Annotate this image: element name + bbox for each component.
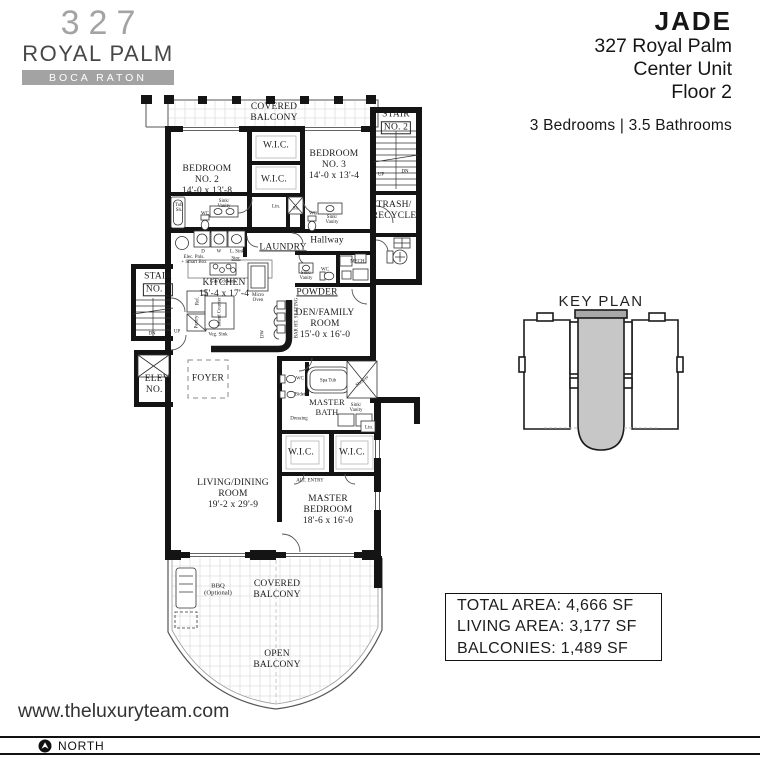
stair2-number: NO. 2 — [381, 122, 411, 135]
label-linen-top: Lin. — [272, 203, 280, 208]
fixture-label-sink-master: Sink/ Vanity — [350, 402, 363, 412]
fixture-label-refrigerator: Ref. — [194, 297, 199, 305]
room-label-master-bedroom: MASTER BEDROOM 18'-6 x 16'-0 — [303, 494, 353, 528]
room-label-mech: MECH. — [350, 258, 365, 263]
fixture-label-wc-powder: WC — [321, 266, 329, 271]
room-label-bedroom-2: BEDROOM NO. 2 14'-0 x 13'-8 — [182, 164, 232, 198]
room-label-trash-recycle: TRASH/ RECYCLE — [372, 200, 417, 222]
room-label-hallway: Hallway — [310, 235, 344, 246]
fixture-label-gas-cooktop: Gas Cooktop — [210, 278, 236, 283]
fixture-label-bidet: Bidet — [295, 391, 306, 396]
room-label-wic-2: W.I.C. — [261, 174, 287, 185]
fixture-label-wc-bed2: WC — [201, 210, 209, 215]
floorplan-sheet: COVERED BALCONY STAIRNO. 2 BEDROOM NO. 2… — [0, 0, 760, 760]
room-label-open-balcony: OPEN BALCONY — [253, 649, 300, 671]
label-stair2-dn: DN — [401, 168, 408, 173]
room-label-laundry: LAUNDRY — [259, 242, 306, 253]
room-label-wic-3: W.I.C. — [288, 447, 314, 458]
fixture-label-bar-seating: BAR HT. SEATING — [293, 298, 298, 339]
room-label-foyer: FOYER — [192, 373, 224, 384]
fixture-label-washer: W — [217, 248, 222, 253]
fixture-label-pantry: Pantry — [193, 316, 198, 329]
room-label-living-dining: LIVING/DINING ROOM 19'-2 x 29'-9 — [197, 478, 269, 512]
fixture-label-electrical: Elec. Pnls. + Smart Box — [181, 254, 206, 264]
fixture-label-wc-bed3: WC — [309, 210, 317, 215]
label-bbq: BBQ (Optional) — [204, 582, 232, 596]
stair2-word: STAIR — [382, 109, 410, 119]
label-stair2-up: UP — [378, 171, 384, 176]
plan-labels-layer: COVERED BALCONY STAIRNO. 2 BEDROOM NO. 2… — [0, 0, 760, 760]
stair3-number: NO. 3 — [143, 284, 173, 297]
room-label-master-bath: MASTER BATH — [309, 397, 345, 417]
fixture-label-spa-tub: Spa Tub — [320, 377, 336, 382]
fixture-label-island-counter: Island Counter — [216, 297, 221, 326]
fixture-label-storage: Stor. — [231, 255, 240, 260]
fixture-label-sink-powder: Sink/ Vanity — [300, 270, 313, 280]
room-label-elevator-2: ELEV. NO. 2 — [145, 374, 171, 396]
room-label-covered-balcony-top: COVERED BALCONY — [250, 102, 297, 124]
fixture-label-shower-master: Shower — [354, 374, 369, 387]
stair3-word: STAIR — [144, 271, 172, 281]
room-label-powder: POWDER — [296, 287, 337, 298]
fixture-label-sink-bed2: Sink/ Vanity — [218, 198, 231, 208]
fixture-label-wc-master: WC — [296, 375, 304, 380]
fixture-label-shower-bed3: Sh. — [293, 205, 299, 210]
fixture-label-tub-shower: Tub Sh. — [175, 202, 183, 212]
room-label-stair-3: STAIRNO. 3 — [143, 271, 173, 296]
fixture-label-dishwasher: DW — [259, 330, 264, 338]
fixture-label-laundry-sink: L. Sink — [230, 248, 245, 253]
room-label-bedroom-3: BEDROOM NO. 3 14'-0 x 13'-4 — [309, 149, 359, 183]
label-stair3-up: UP — [174, 328, 180, 333]
fixture-label-linen-master: Lin. — [365, 424, 373, 429]
label-alt-entry: ALT. ENTRY — [296, 477, 323, 482]
room-label-wic-1: W.I.C. — [263, 140, 289, 151]
fixture-label-micro-oven: Micro Oven — [252, 292, 264, 302]
room-label-wic-4: W.I.C. — [339, 447, 365, 458]
room-label-stair-2: STAIRNO. 2 — [381, 109, 411, 134]
label-stair3-dn: DN — [148, 330, 155, 335]
fixture-label-veg-sink: Veg. Sink — [208, 331, 227, 336]
room-label-covered-balcony-bottom: COVERED BALCONY — [253, 579, 300, 601]
fixture-label-dressing: Dressing — [290, 415, 308, 420]
room-label-den-family: DEN/FAMILY ROOM 15'-0 x 16'-0 — [296, 308, 355, 342]
fixture-label-sink-bed3: Sink/ Vanity — [326, 214, 339, 224]
